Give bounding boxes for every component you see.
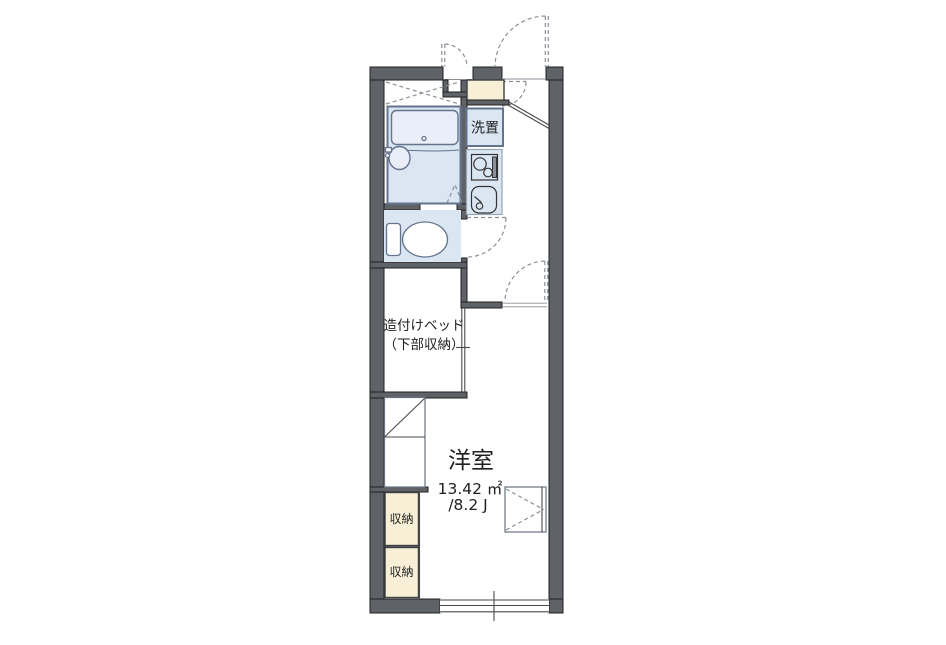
genkan-floor bbox=[467, 80, 504, 101]
floor-plan: 洗置 造付けベッド （下部収納） bbox=[0, 0, 946, 645]
wall-left bbox=[370, 67, 384, 613]
storage-upper-label: 収納 bbox=[389, 512, 413, 526]
wall-top-seg1 bbox=[370, 67, 443, 80]
bed-label-line2: （下部収納） bbox=[384, 337, 465, 353]
wall-bath-bottom-left bbox=[384, 204, 420, 210]
wall-bath-bottom-right bbox=[457, 204, 467, 210]
built-in-bed: 造付けベッド （下部収納） bbox=[384, 308, 471, 392]
service-door-swing bbox=[442, 44, 467, 67]
genkan-step-diagonal bbox=[509, 102, 549, 129]
laundry-label: 洗置 bbox=[471, 121, 499, 137]
room-area-jo: /8.2 J bbox=[448, 496, 487, 514]
genkan-step bbox=[467, 100, 509, 105]
side-window-box bbox=[505, 487, 546, 532]
wall-top-seg3 bbox=[546, 67, 563, 80]
bathroom bbox=[386, 82, 463, 204]
wall-hall-bottom bbox=[461, 302, 502, 308]
entrance-door-swing-out bbox=[495, 16, 548, 67]
washbasin-faucet bbox=[386, 148, 392, 153]
wall-bottom-seg2 bbox=[549, 599, 563, 613]
bottom-window-frame bbox=[440, 591, 549, 621]
washbasin-knob bbox=[386, 154, 390, 158]
wall-toilet-bottom bbox=[370, 262, 467, 268]
room-door-swing bbox=[505, 261, 548, 302]
hall-room-door bbox=[502, 261, 548, 307]
laundry-space: 洗置 bbox=[467, 109, 504, 147]
wall-stub-closet-top bbox=[370, 487, 428, 492]
side-window bbox=[505, 487, 546, 532]
floor-plan-page: 洗置 造付けベッド （下部収納） bbox=[0, 0, 946, 645]
wall-bottom-seg1 bbox=[370, 599, 440, 613]
bed-step-boxes bbox=[385, 398, 426, 488]
room-name-label: 洋室 bbox=[448, 448, 494, 474]
toilet-room bbox=[384, 210, 506, 262]
bathtub-drain bbox=[422, 137, 426, 141]
kitchen bbox=[467, 150, 503, 215]
bed-label-line1: 造付けベッド bbox=[384, 318, 465, 334]
storage-closets: 収納 収納 bbox=[385, 492, 420, 599]
toilet-door-swing bbox=[467, 218, 506, 258]
toilet-bowl bbox=[403, 222, 448, 257]
step-box-outline bbox=[385, 398, 426, 488]
wall-top-seg2 bbox=[473, 67, 502, 80]
storage-lower-label: 収納 bbox=[389, 565, 413, 579]
stove-grill bbox=[493, 157, 497, 178]
main-room: 洋室 13.42 ㎡ /8.2 J bbox=[438, 448, 503, 514]
bottom-window bbox=[440, 591, 549, 621]
wall-right bbox=[549, 67, 563, 613]
toilet-tank bbox=[387, 224, 401, 256]
